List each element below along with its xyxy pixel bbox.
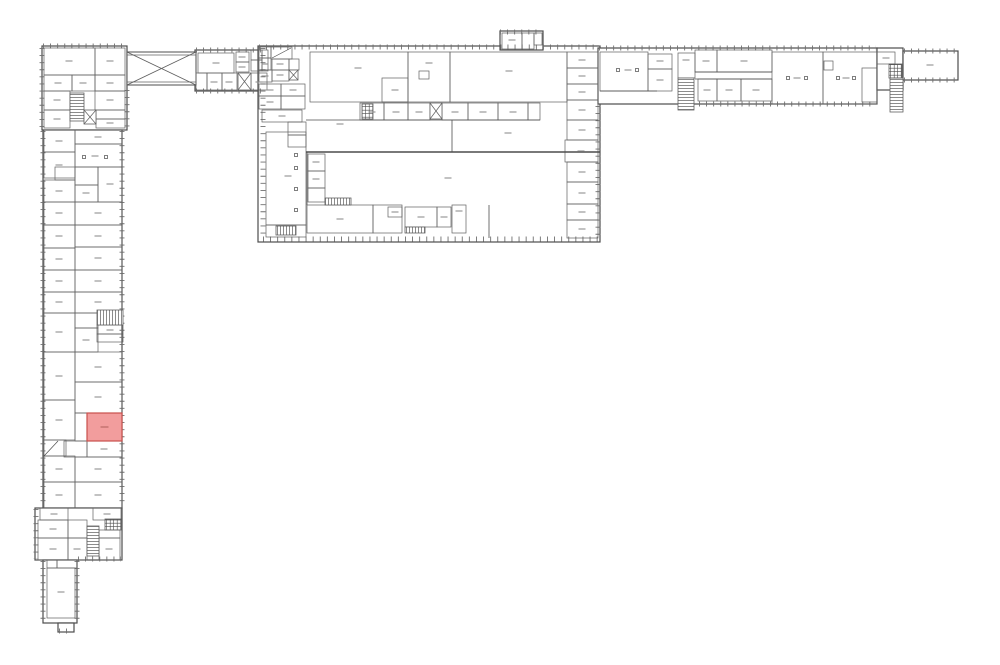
floor-plan-page xyxy=(0,0,1000,665)
floor-plan-drawing xyxy=(0,0,1000,665)
highlighted-room[interactable] xyxy=(87,413,122,441)
connecting-bridge xyxy=(127,52,196,85)
building-mass-outlines xyxy=(35,31,958,632)
